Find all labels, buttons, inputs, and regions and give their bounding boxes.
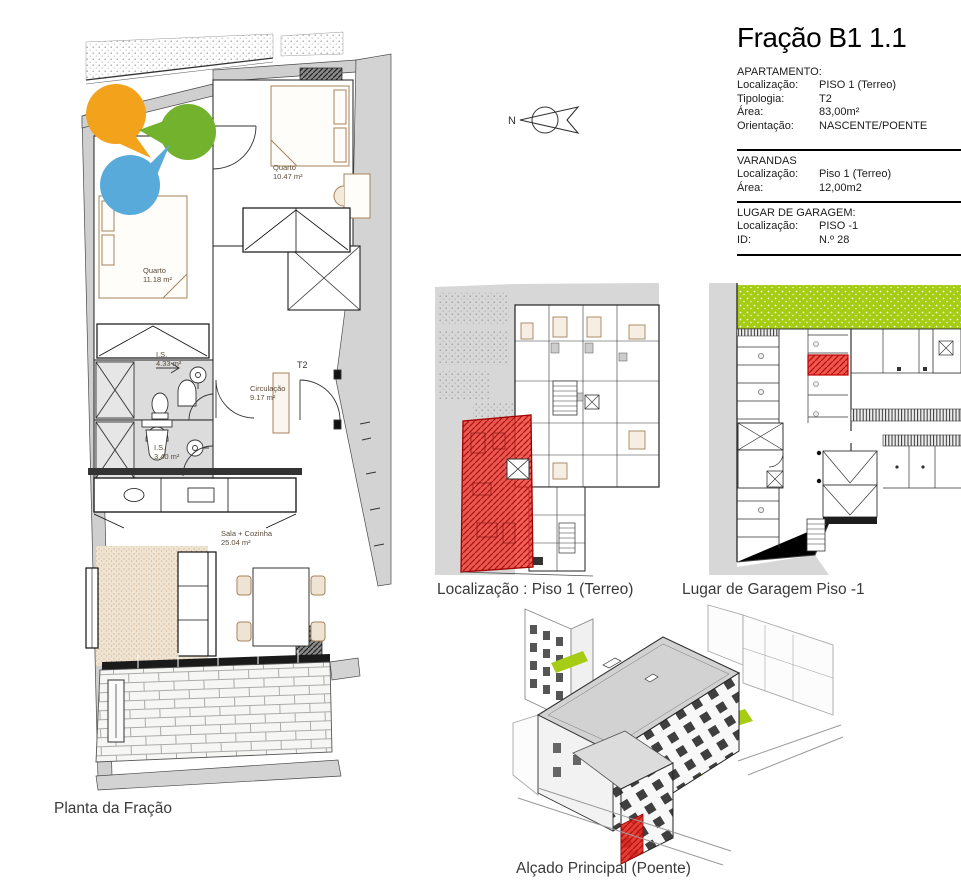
info-row: Tipologia:T2	[737, 93, 961, 107]
page-title: Fração B1 1.1	[737, 22, 961, 54]
dining-table	[253, 568, 309, 646]
section-header: LUGAR DE GARAGEM:	[737, 207, 961, 219]
room-label-is2: I.S.3.40 m²	[154, 443, 179, 461]
grass-area	[737, 285, 961, 329]
divider	[737, 254, 961, 256]
balcony-paving	[96, 662, 332, 762]
north-arrow-icon: N	[500, 98, 592, 144]
garage-plan-drawing	[683, 283, 961, 579]
section-garagem: LUGAR DE GARAGEM: Localização:PISO -1 ID…	[737, 207, 961, 247]
divider	[737, 201, 961, 203]
info-row: Orientação:NASCENTE/POENTE	[737, 120, 961, 134]
info-panel: Fração B1 1.1 APARTAMENTO: Localização:P…	[737, 22, 961, 260]
floorplan-drawing	[38, 28, 393, 793]
divider	[737, 149, 961, 151]
location-plan-drawing	[433, 283, 665, 579]
section-header: APARTAMENTO:	[737, 66, 961, 78]
compass-label: N	[508, 115, 516, 127]
entry-type-label: T2	[297, 360, 308, 370]
room-label-is1: I.S.4.33 m²	[156, 350, 181, 368]
section-varandas: VARANDAS Localização:Piso 1 (Terreo) Áre…	[737, 155, 961, 195]
floorplan-caption: Planta da Fração	[54, 800, 172, 818]
garage-plan-caption: Lugar de Garagem Piso -1	[682, 581, 865, 599]
room-label-quarto2: Quarto11.18 m²	[143, 266, 172, 284]
info-row: ID:N.º 28	[737, 234, 961, 248]
info-row: Localização:Piso 1 (Terreo)	[737, 168, 961, 182]
location-plan-caption: Localização : Piso 1 (Terreo)	[437, 581, 633, 599]
info-row: Área:83,00m²	[737, 106, 961, 120]
room-label-circulacao: Circulação9.17 m²	[250, 384, 285, 402]
room-label-sala: Sala + Cozinha25.04 m²	[221, 529, 272, 547]
room-label-quarto1: Quarto10.47 m²	[273, 163, 303, 181]
info-row: Área:12,00m2	[737, 182, 961, 196]
property-datasheet: Quarto10.47 m² Quarto11.18 m² I.S.4.33 m…	[0, 0, 961, 891]
section-header: VARANDAS	[737, 155, 961, 167]
section-apartamento: APARTAMENTO: Localização:PISO 1 (Terreo)…	[737, 66, 961, 133]
apartment-highlight	[461, 415, 533, 572]
elevation-caption: Alçado Principal (Poente)	[516, 860, 691, 878]
info-row: Localização:PISO 1 (Terreo)	[737, 79, 961, 93]
elevation-drawing	[513, 603, 843, 858]
garage-space-highlight	[808, 355, 848, 375]
wall	[96, 760, 341, 790]
info-row: Localização:PISO -1	[737, 220, 961, 234]
